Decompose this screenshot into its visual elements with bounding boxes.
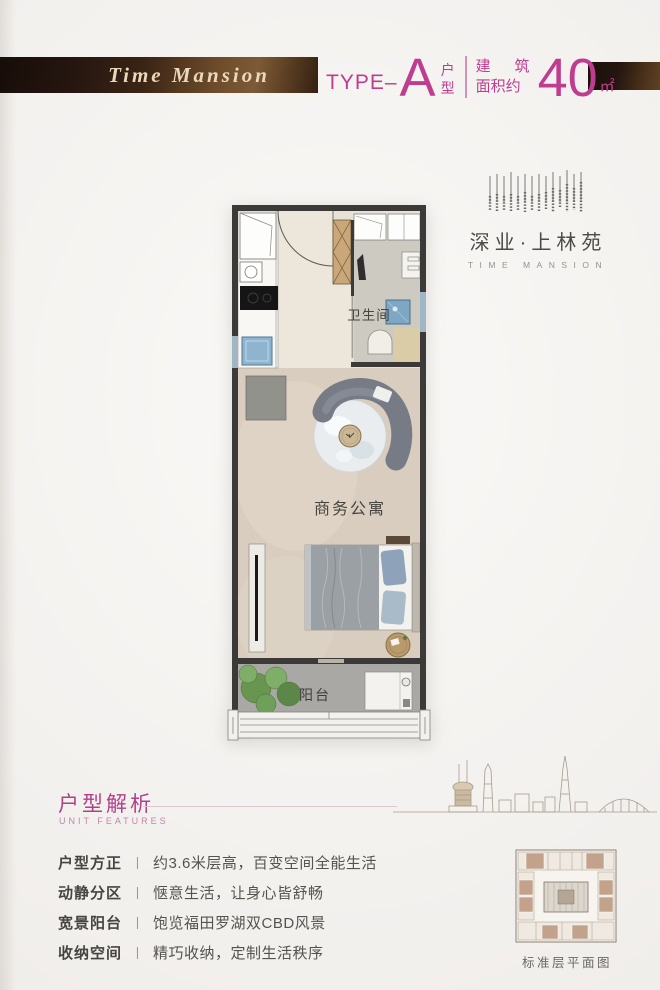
- area-prefix-row1: 建 筑: [476, 57, 530, 77]
- feature-row: 户型方正 丨 约3.6米层高，百变空间全能生活: [58, 852, 377, 873]
- features-heading-rule: [143, 806, 397, 807]
- standard-floorplate-diagram: [502, 848, 630, 948]
- type-letter: A: [400, 56, 436, 100]
- feature-row: 动静分区 丨 惬意生活，让身心皆舒畅: [58, 882, 377, 903]
- feature-divider: 丨: [131, 853, 144, 872]
- brand-logo: 深业·上林苑 TIME MANSION: [452, 166, 624, 270]
- type-char-bottom: 型: [441, 80, 455, 98]
- living-room-label: 商务公寓: [314, 500, 386, 518]
- ribbon-banner: Time Mansion: [0, 57, 318, 93]
- balcony-label: 阳台: [299, 687, 331, 703]
- feature-desc: 精巧收纳，定制生活秩序: [153, 942, 324, 963]
- area-unit: ㎡: [600, 75, 615, 100]
- brand-logo-mark-icon: [486, 166, 590, 216]
- bathroom-label: 卫生间: [347, 308, 391, 323]
- feature-label: 宽景阳台: [58, 912, 122, 933]
- feature-label: 收纳空间: [58, 942, 122, 963]
- features-title-cn: 户型解析: [58, 788, 154, 818]
- feature-label: 动静分区: [58, 882, 122, 903]
- feature-label: 户型方正: [58, 852, 122, 873]
- type-prefix-label: TYPE–: [326, 71, 398, 100]
- brand-name-en: TIME MANSION: [452, 260, 624, 270]
- feature-list: 户型方正 丨 约3.6米层高，百变空间全能生活 动静分区 丨 惬意生活，让身心皆…: [58, 852, 377, 972]
- feature-divider: 丨: [131, 883, 144, 902]
- type-suffix-stack: 户 型: [441, 62, 455, 100]
- city-skyline-illustration: [393, 750, 659, 818]
- brand-name-cn: 深业·上林苑: [452, 226, 624, 255]
- area-prefix-stack: 建 筑 面积约: [476, 57, 530, 101]
- floorplan-drawing: 卫生间 商务公寓 阳台: [226, 196, 440, 748]
- floorplate-caption: 标准层平面图: [492, 952, 642, 971]
- feature-divider: 丨: [131, 913, 144, 932]
- features-title-en: UNIT FEATURES: [59, 816, 169, 826]
- area-char-2: 筑: [515, 57, 530, 77]
- area-char-1: 建: [476, 57, 491, 77]
- feature-row: 宽景阳台 丨 饱览福田罗湖双CBD风景: [58, 912, 377, 933]
- type-char-top: 户: [441, 62, 455, 80]
- ribbon-script-text: Time Mansion: [48, 63, 270, 88]
- area-prefix-row2: 面积约: [476, 77, 530, 97]
- title-divider: [465, 56, 467, 98]
- feature-divider: 丨: [131, 943, 144, 962]
- feature-desc: 饱览福田罗湖双CBD风景: [153, 912, 326, 933]
- feature-desc: 惬意生活，让身心皆舒畅: [153, 882, 324, 903]
- floorplan-poster-page: { "header": { "ribbon_text": "Time Mansi…: [0, 0, 660, 990]
- feature-row: 收纳空间 丨 精巧收纳，定制生活秩序: [58, 942, 377, 963]
- unit-floorplan: 卫生间 商务公寓 阳台: [226, 196, 440, 748]
- feature-desc: 约3.6米层高，百变空间全能生活: [153, 852, 377, 873]
- area-value: 40: [538, 56, 598, 100]
- unit-type-title: TYPE– A 户 型 建 筑 面积约 40 ㎡: [326, 50, 615, 100]
